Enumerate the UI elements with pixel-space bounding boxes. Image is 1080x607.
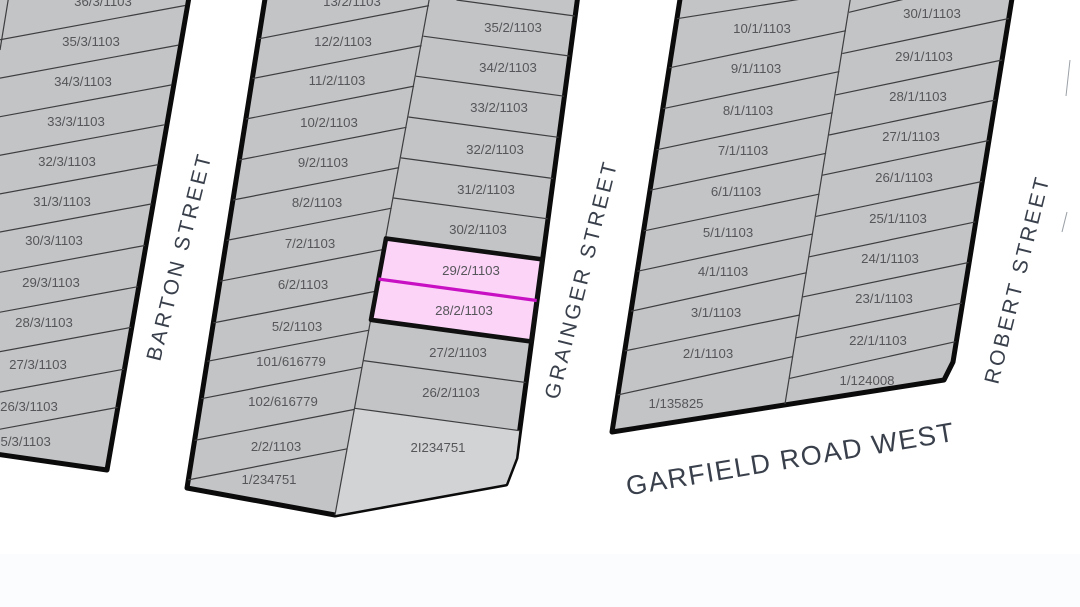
parcel-label: 27/2/1103 — [429, 345, 487, 360]
parcel-label: 4/1/1103 — [698, 264, 748, 279]
parcel-label: 31/2/1103 — [457, 182, 515, 197]
parcel-label: 30/1/1103 — [903, 6, 961, 21]
parcel-label: 28/1/1103 — [889, 89, 947, 104]
parcel-label: 22/1/1103 — [849, 333, 907, 348]
cadastral-map[interactable]: 36/3/1103 35/3/1103 34/3/1103 33/3/1103 … — [0, 0, 1080, 607]
parcel-label: 36/3/1103 — [74, 0, 132, 9]
map-background-lower-band — [0, 554, 1080, 607]
parcel-label: 6/1/1103 — [711, 184, 761, 199]
parcel-label: 1/234751 — [241, 472, 296, 487]
parcel-label: 1/124008 — [839, 373, 894, 388]
parcel-label: 2I234751 — [410, 440, 465, 455]
parcel-label: 29/3/1103 — [22, 275, 80, 290]
highlighted-parcel-label: 28/2/1103 — [435, 303, 493, 318]
parcel-label: 24/1/1103 — [861, 251, 919, 266]
parcel-label: 30/3/1103 — [25, 233, 83, 248]
parcel-label: 3/1/1103 — [691, 305, 741, 320]
parcel-label: 10/2/1103 — [300, 115, 358, 130]
parcel-label: 7/2/1103 — [285, 236, 335, 251]
parcel-label: 26/3/1103 — [0, 399, 58, 414]
parcel-label: 6/2/1103 — [278, 277, 328, 292]
parcel-label: 23/1/1103 — [855, 291, 913, 306]
parcel-label: 11/2/1103 — [309, 73, 366, 88]
cadastral-map-viewport[interactable]: 36/3/1103 35/3/1103 34/3/1103 33/3/1103 … — [0, 0, 1080, 607]
parcel-label: 5/2/1103 — [272, 319, 322, 334]
parcel-label: 31/3/1103 — [33, 194, 91, 209]
parcel-label: 25/3/1103 — [0, 434, 51, 449]
parcel-label: 26/2/1103 — [422, 385, 480, 400]
parcel-label: 27/3/1103 — [9, 357, 67, 372]
parcel-label: 2/1/1103 — [683, 346, 733, 361]
parcel-label: 35/2/1103 — [484, 20, 542, 35]
parcel-label: 29/1/1103 — [895, 49, 953, 64]
parcel-label: 32/3/1103 — [38, 154, 96, 169]
parcel-label: 34/2/1103 — [479, 60, 537, 75]
parcel-label: 34/3/1103 — [54, 74, 112, 89]
parcel-label: 26/1/1103 — [875, 170, 933, 185]
parcel-label: 10/1/1103 — [733, 21, 791, 36]
parcel-label: 101/616779 — [256, 354, 326, 369]
parcel-label: 30/2/1103 — [449, 222, 507, 237]
parcel-label: 8/1/1103 — [723, 103, 773, 118]
parcel-label: 28/3/1103 — [15, 315, 73, 330]
parcel-label: 9/2/1103 — [298, 155, 348, 170]
parcel-label: 2/2/1103 — [251, 439, 301, 454]
parcel-label: 9/1/1103 — [731, 61, 781, 76]
parcel-label: 13/2/1103 — [323, 0, 381, 9]
parcel-label: 33/3/1103 — [47, 114, 105, 129]
parcel-label: 7/1/1103 — [718, 143, 768, 158]
parcel-label: 8/2/1103 — [292, 195, 342, 210]
parcel-label: 12/2/1103 — [314, 34, 372, 49]
parcel-label: 27/1/1103 — [882, 129, 940, 144]
parcel-label: 25/1/1103 — [869, 211, 927, 226]
parcel-label: 35/3/1103 — [62, 34, 120, 49]
parcel-label: 102/616779 — [248, 394, 318, 409]
parcel-label: 1/135825 — [648, 396, 703, 411]
highlighted-parcel-label: 29/2/1103 — [442, 263, 500, 278]
parcel-label: 32/2/1103 — [466, 142, 524, 157]
parcel-label: 33/2/1103 — [470, 100, 528, 115]
parcel-label: 5/1/1103 — [703, 225, 753, 240]
